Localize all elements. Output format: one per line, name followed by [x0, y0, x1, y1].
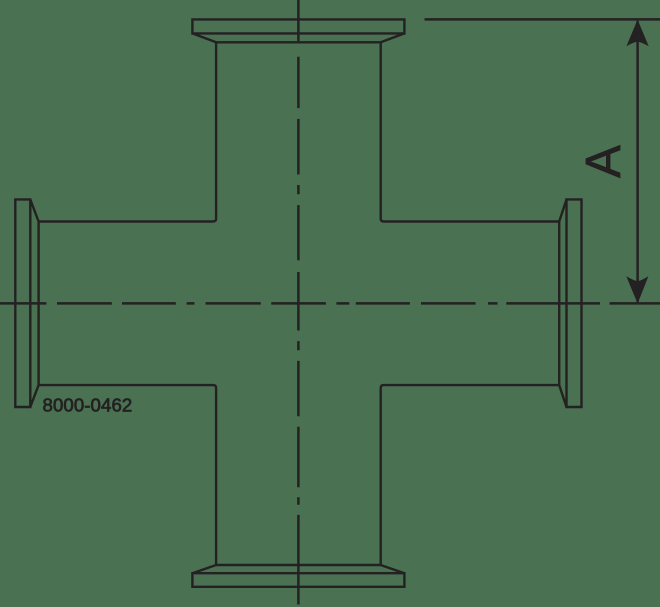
svg-text:8000-0462: 8000-0462: [43, 395, 133, 416]
svg-text:A: A: [577, 145, 631, 178]
